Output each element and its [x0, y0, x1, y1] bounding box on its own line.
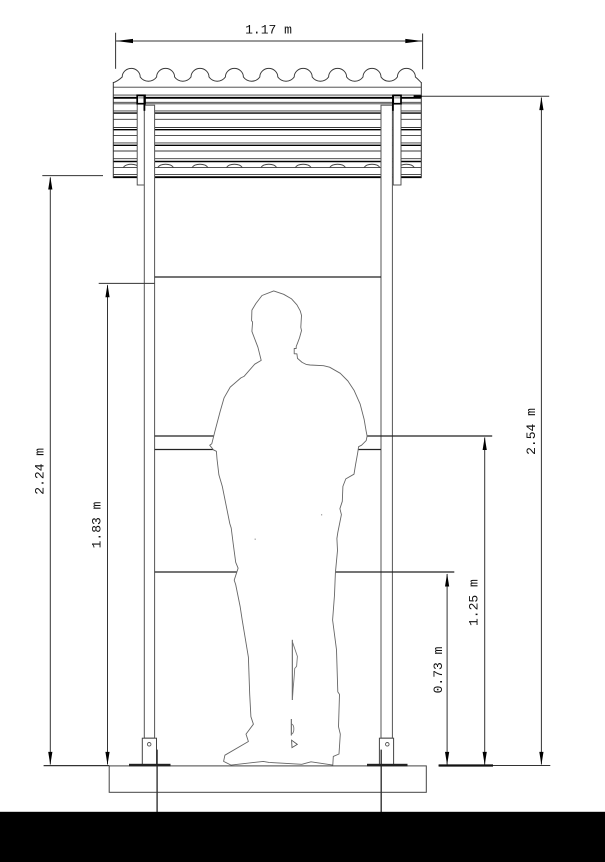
svg-text:2.54 m: 2.54 m [524, 408, 539, 455]
svg-text:1.83 m: 1.83 m [90, 501, 105, 548]
svg-text:1.25 m: 1.25 m [466, 579, 481, 626]
svg-text:2.24 m: 2.24 m [33, 448, 48, 495]
svg-text:1.17 m: 1.17 m [245, 22, 292, 37]
svg-text:0.73 m: 0.73 m [431, 646, 446, 693]
